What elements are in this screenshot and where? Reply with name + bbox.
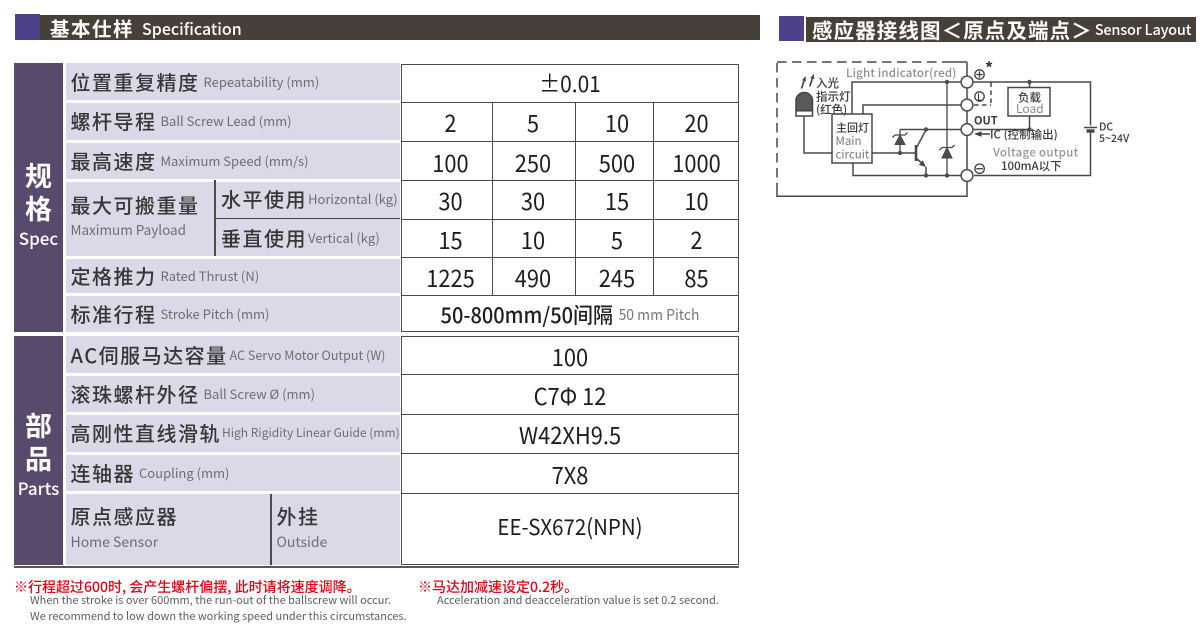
svg-text:*: * <box>985 55 993 79</box>
svg-text:Load: Load <box>1016 100 1044 117</box>
svg-text:100mA以下: 100mA以下 <box>1001 158 1062 174</box>
svg-text:IC (控制输出): IC (控制输出) <box>990 127 1058 143</box>
svg-text:Light indicator(red): Light indicator(red) <box>846 65 957 81</box>
svg-text:5~24V: 5~24V <box>1099 131 1130 146</box>
svg-text:circuit: circuit <box>836 147 870 163</box>
svg-text:L: L <box>977 90 982 104</box>
svg-text:(红色): (红色) <box>816 102 847 118</box>
